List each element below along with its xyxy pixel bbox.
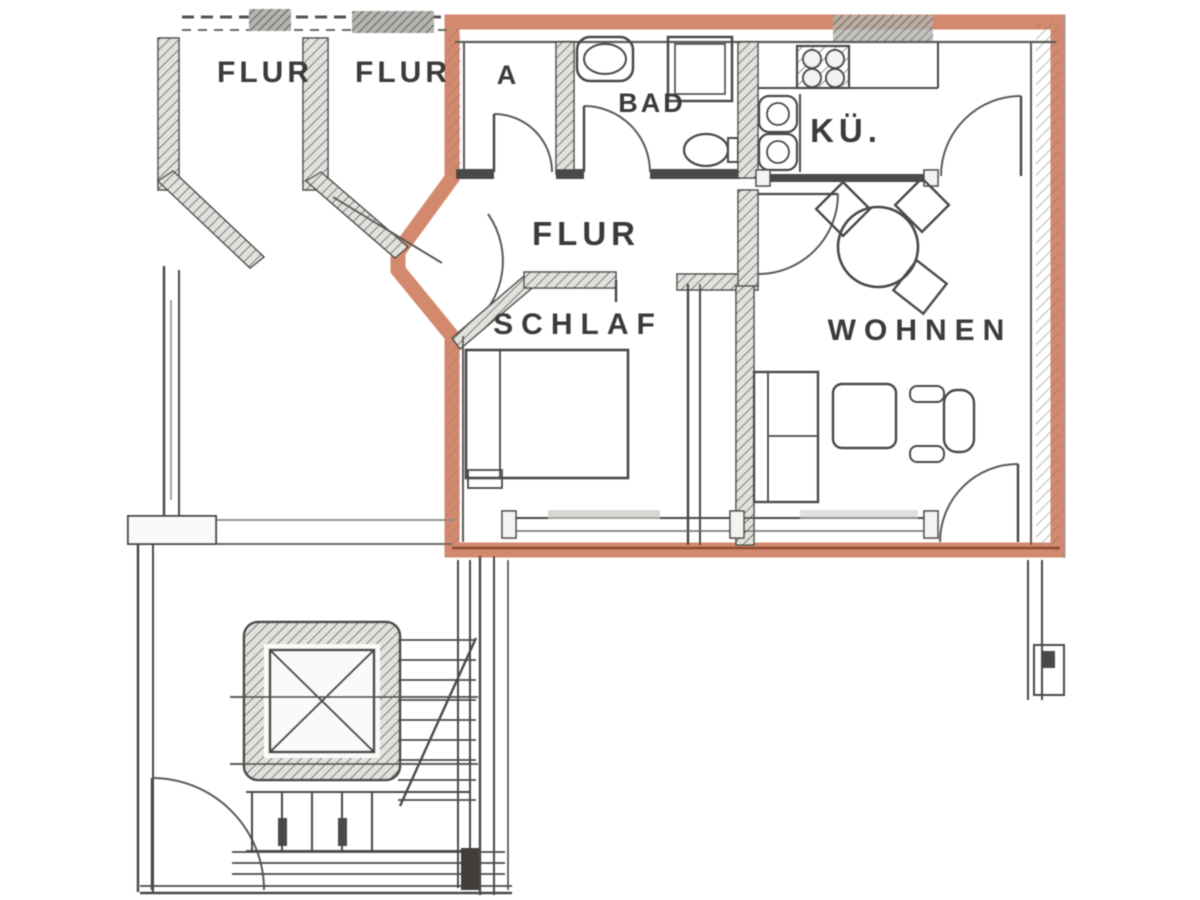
living-room: WOHNEN (736, 178, 1018, 545)
storage-door-arc (494, 114, 552, 172)
hall-diagonal-wall-mid (306, 172, 408, 258)
hallway-label: FLUR (532, 215, 640, 252)
bathroom-toilet-bowl (684, 134, 728, 166)
stairwell-right-wall (458, 556, 508, 895)
living-door-arc (758, 194, 838, 274)
kitchen: KÜ. (738, 42, 1021, 186)
dining-chair-2 (895, 178, 949, 232)
window-mullion-3 (924, 511, 938, 538)
balcony-door-arc (940, 464, 1018, 542)
kitchen-sink-drain-1 (767, 103, 789, 125)
right-exterior-detail (1028, 560, 1064, 700)
stairwell-ledge (128, 516, 216, 544)
bath-kitchen-divider-wall (738, 42, 758, 178)
bedroom-left-wall-hatch (446, 340, 460, 542)
kitchen-sink-basin-1 (759, 96, 797, 132)
kitchen-wall-cap-left (756, 170, 770, 186)
bathroom-shower-inner (675, 44, 725, 94)
railing-post-mark-1 (278, 818, 287, 846)
bedroom: SCHLAF (452, 272, 758, 545)
stairs-upper-flight (398, 638, 476, 806)
stairs-lower-flight (140, 852, 512, 893)
armchair (944, 390, 974, 452)
bedroom-label: SCHLAF (493, 308, 663, 341)
beam-hatch-block-2 (352, 11, 434, 33)
stove-burner-1 (803, 50, 821, 68)
armchair-armrest-bottom (910, 446, 944, 462)
kitchen-door-arc (941, 96, 1021, 176)
living-left-wall (736, 286, 754, 545)
storage-left-wall-hatch (446, 28, 461, 174)
top-wall-hatch-segment (833, 15, 933, 42)
right-detail-dark-square (1041, 651, 1055, 668)
bathroom-toilet-tank (728, 138, 738, 162)
bathroom: BAD (556, 37, 740, 174)
stove-burner-3 (803, 69, 821, 87)
window-sill-bar-2 (800, 510, 918, 519)
storage-label: A (497, 60, 520, 90)
window-sill-bar-1 (548, 510, 660, 519)
right-exterior-wall-hatch (1036, 22, 1060, 552)
common-hall-section: FLUR FLUR (158, 9, 451, 520)
floor-plan-svg: FLUR FLUR A BAD (0, 0, 1200, 900)
storage-room: A (456, 42, 574, 174)
hall-common-right-label: FLUR (355, 56, 451, 89)
storage-bath-divider-wall (556, 42, 574, 174)
stove-burner-4 (826, 69, 844, 87)
south-window-band (132, 510, 938, 544)
bed (466, 350, 628, 478)
dining-chair-3 (893, 260, 946, 313)
kitchen-sink-drain-2 (767, 141, 789, 163)
hall-left-wall (158, 38, 179, 190)
floor-plan-page: FLUR FLUR A BAD (0, 0, 1200, 900)
bathroom-label: BAD (618, 88, 686, 118)
living-entry-wall (738, 190, 758, 286)
sofa-outline (754, 372, 818, 502)
stairwell-dark-element (461, 848, 479, 890)
railing-post-mark-2 (338, 818, 347, 846)
living-room-label: WOHNEN (828, 314, 1013, 347)
armchair-armrest-top (910, 386, 944, 402)
coffee-table (833, 384, 896, 448)
beam-hatch-block-1 (249, 9, 291, 31)
bathroom-sink-basin (584, 44, 626, 74)
kitchen-sink-basin-2 (759, 134, 797, 170)
stove-burner-2 (826, 50, 844, 68)
kitchen-label: KÜ. (810, 112, 882, 149)
stairwell-section (128, 516, 512, 895)
hall-common-left-label: FLUR (217, 56, 313, 89)
bedroom-top-wall (524, 272, 616, 288)
hall-diagonal-wall-left (158, 171, 264, 268)
window-mullion-2 (730, 511, 744, 538)
stairs-railing (246, 792, 470, 852)
window-mullion-1 (502, 511, 516, 538)
